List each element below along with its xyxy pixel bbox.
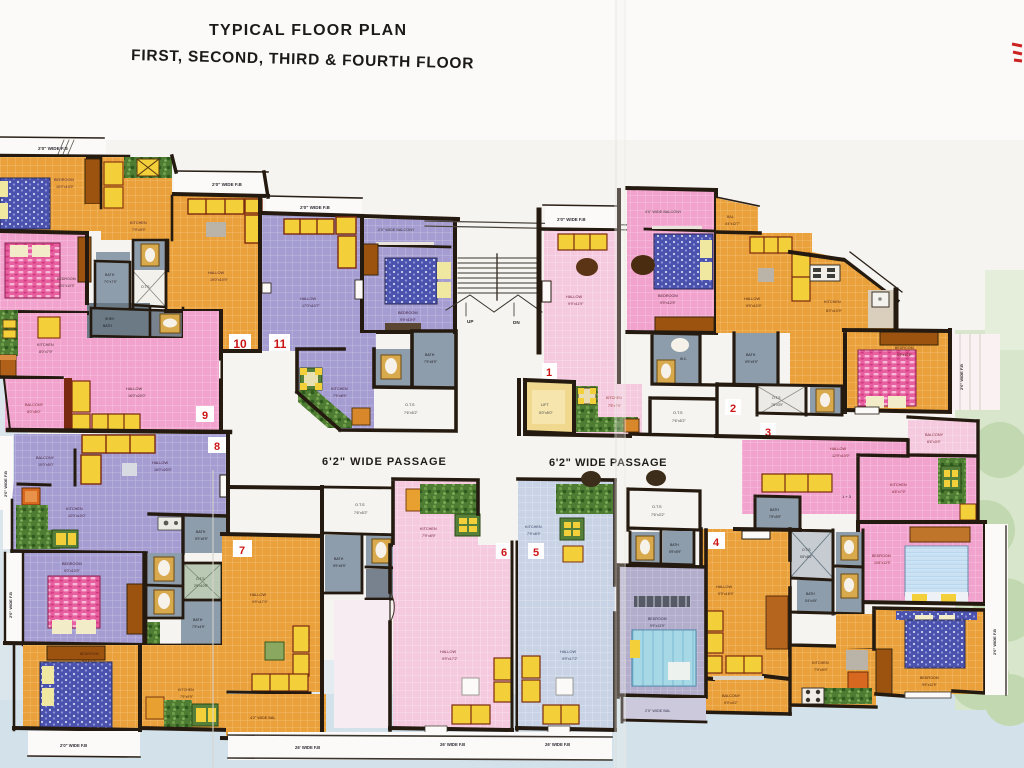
svg-text:KITCHEN: KITCHEN (812, 661, 829, 665)
svg-text:9'0"x10'9": 9'0"x10'9" (64, 569, 80, 573)
svg-text:19'0"x10'9": 19'0"x10'9" (210, 278, 228, 282)
svg-text:26' WIDE F.B: 26' WIDE F.B (295, 745, 320, 750)
svg-text:KITCHEN: KITCHEN (130, 221, 147, 225)
svg-text:5'9"x5'9": 5'9"x5'9" (195, 537, 209, 541)
svg-text:10'0"x5'0": 10'0"x5'0" (38, 463, 54, 467)
svg-text:1: 1 (546, 367, 552, 379)
svg-text:BEDROOM: BEDROOM (895, 346, 914, 350)
svg-text:BATH: BATH (746, 353, 756, 357)
svg-text:HALLOW: HALLOW (126, 387, 142, 391)
svg-text:2'0" WIDE F.B: 2'0" WIDE F.B (557, 217, 586, 222)
svg-text:16'0"x20'0": 16'0"x20'0" (128, 394, 146, 398)
svg-text:2'0" WIDE F.B: 2'0" WIDE F.B (300, 205, 330, 210)
svg-text:HALLOW: HALLOW (250, 593, 266, 597)
svg-text:9: 9 (202, 410, 208, 422)
svg-text:O.T.S: O.T.S (355, 503, 365, 507)
svg-text:KITCHEN: KITCHEN (890, 483, 907, 487)
svg-text:O.T.S: O.T.S (405, 403, 415, 407)
svg-text:2'0" WIDE F.B: 2'0" WIDE F.B (3, 471, 8, 497)
svg-text:12'0"x10'0": 12'0"x10'0" (68, 514, 86, 518)
svg-text:7'9"x5'9": 7'9"x5'9" (424, 360, 438, 364)
svg-text:4: 4 (713, 537, 720, 549)
svg-text:7'9"x8'9": 7'9"x8'9" (333, 394, 347, 398)
svg-text:BATH: BATH (770, 508, 779, 512)
svg-text:2'0" WIDE F.B: 2'0" WIDE F.B (60, 743, 87, 748)
svg-text:2'0" WIDE F.B: 2'0" WIDE F.B (959, 364, 964, 390)
svg-text:5: 5 (533, 547, 539, 559)
svg-text:8'0"x7'9": 8'0"x7'9" (39, 350, 53, 354)
svg-text:17'0"x10'7": 17'0"x10'7" (302, 304, 320, 308)
svg-text:9'9"x4'2": 9'9"x4'2" (724, 701, 738, 705)
svg-text:BEDROOM: BEDROOM (54, 178, 74, 182)
svg-text:BAL.: BAL. (727, 215, 735, 219)
svg-text:BATH: BATH (193, 618, 203, 622)
svg-text:7'0"x7'9": 7'0"x7'9" (104, 280, 118, 284)
svg-text:7'9"x8'9": 7'9"x8'9" (527, 532, 541, 536)
svg-text:W.C.: W.C. (680, 357, 687, 361)
svg-text:O.T.S: O.T.S (652, 505, 662, 509)
svg-text:UP: UP (467, 319, 473, 324)
svg-text:HALLOW: HALLOW (560, 650, 576, 654)
svg-text:5'9"x5'9": 5'9"x5'9" (333, 564, 347, 568)
svg-text:7'9"x9'9": 7'9"x9'9" (180, 695, 194, 699)
svg-text:8'0"x10'9": 8'0"x10'9" (826, 309, 842, 313)
svg-text:2'0" WIDE F.B: 2'0" WIDE F.B (38, 146, 68, 151)
svg-text:BEDROOM: BEDROOM (398, 311, 418, 315)
svg-text:O.T.S: O.T.S (673, 411, 683, 415)
svg-text:KITCHEN: KITCHEN (824, 300, 841, 304)
svg-text:6'6"x3'9": 6'6"x3'9" (927, 440, 941, 444)
svg-text:8: 8 (214, 441, 220, 453)
svg-text:2'0" WIDE F.B: 2'0" WIDE F.B (992, 629, 997, 655)
svg-text:7'9"x8'9": 7'9"x8'9" (422, 534, 436, 538)
svg-text:7'9"x4'9": 7'9"x4'9" (192, 625, 206, 629)
svg-text:BALCONY: BALCONY (25, 403, 44, 407)
svg-text:10: 10 (233, 337, 247, 351)
svg-text:4'2" WIDE BAL: 4'2" WIDE BAL (250, 716, 276, 720)
svg-text:10'6"x12'9": 10'6"x12'9" (874, 561, 892, 565)
svg-text:5'9"x5'9": 5'9"x5'9" (669, 550, 681, 554)
svg-text:TYPICAL FLOOR PLAN: TYPICAL FLOOR PLAN (209, 22, 407, 39)
svg-text:BALCONY: BALCONY (925, 433, 944, 437)
svg-text:O.T.S: O.T.S (141, 285, 150, 289)
svg-text:7'6"x3'2": 7'6"x3'2" (651, 513, 665, 517)
svg-text:HALLOW: HALLOW (716, 585, 732, 589)
svg-text:12'9"x10'9": 12'9"x10'9" (832, 454, 850, 458)
svg-text:BATH: BATH (196, 530, 206, 534)
svg-text:1 + 3: 1 + 3 (842, 494, 852, 499)
svg-text:26' WIDE F.B: 26' WIDE F.B (545, 742, 570, 747)
svg-text:9'9"x12'9": 9'9"x12'9" (922, 683, 938, 687)
svg-text:4'4"x12'7": 4'4"x12'7" (725, 222, 741, 226)
svg-text:BEDROOM: BEDROOM (80, 652, 99, 656)
svg-text:7'9"x9'9": 7'9"x9'9" (132, 228, 146, 232)
svg-text:10'0"x10'9": 10'0"x10'9" (56, 185, 74, 189)
svg-text:9'9"x10'9": 9'9"x10'9" (746, 304, 762, 308)
svg-text:2'0" WIDE F.B: 2'0" WIDE F.B (212, 182, 242, 187)
svg-text:7'6"x5'2": 7'6"x5'2" (672, 419, 686, 423)
svg-text:2'0" WIDE F.B: 2'0" WIDE F.B (8, 592, 13, 618)
svg-text:KITCHEN: KITCHEN (420, 527, 437, 531)
svg-text:6'2" WIDE PASSAGE: 6'2" WIDE PASSAGE (549, 457, 667, 469)
svg-text:BEDROOM: BEDROOM (658, 294, 678, 298)
svg-text:KITCHEN: KITCHEN (178, 688, 194, 692)
svg-text:5'4"x4'9": 5'4"x4'9" (805, 599, 817, 603)
svg-text:HALLOW: HALLOW (440, 650, 456, 654)
svg-text:9'9"x10'9": 9'9"x10'9" (400, 318, 416, 322)
svg-text:7'6"x5'2": 7'6"x5'2" (404, 411, 418, 415)
svg-text:BATH: BATH (103, 324, 112, 328)
svg-text:2: 2 (730, 403, 736, 415)
svg-text:HALLOW: HALLOW (744, 297, 760, 301)
svg-text:7: 7 (239, 545, 245, 557)
svg-text:4'0" WIDE BALCONY: 4'0" WIDE BALCONY (645, 210, 682, 214)
svg-text:HALLOW: HALLOW (152, 461, 168, 465)
svg-text:5'9"x5'9": 5'9"x5'9" (745, 360, 759, 364)
svg-text:BATH: BATH (105, 273, 115, 277)
svg-text:6: 6 (501, 547, 507, 559)
svg-text:7'9"x9'9": 7'9"x9'9" (814, 668, 828, 672)
svg-text:11: 11 (274, 337, 287, 351)
svg-text:LIFT: LIFT (541, 403, 549, 407)
svg-text:9'9"x11'9": 9'9"x11'9" (568, 302, 584, 306)
svg-text:O.T.S: O.T.S (772, 396, 781, 400)
svg-text:BATH: BATH (670, 543, 679, 547)
svg-text:BATH: BATH (425, 353, 435, 357)
svg-text:5'0"x5'0": 5'0"x5'0" (539, 411, 553, 415)
svg-text:9'9"x17'2": 9'9"x17'2" (442, 657, 458, 661)
svg-text:2'0" WIDE BAL: 2'0" WIDE BAL (645, 709, 671, 713)
svg-text:5'6"x5'4": 5'6"x5'4" (800, 555, 812, 559)
svg-text:BEDROOM: BEDROOM (57, 277, 76, 281)
svg-text:O.T.S: O.T.S (802, 548, 811, 552)
svg-text:KITCHEN: KITCHEN (525, 525, 542, 529)
svg-text:10'0"x10'9": 10'0"x10'9" (58, 284, 76, 288)
svg-text:O.T.S: O.T.S (196, 577, 205, 581)
svg-text:9'9"x17'9": 9'9"x17'9" (252, 600, 268, 604)
svg-text:9'9"x12'9": 9'9"x12'9" (660, 301, 676, 305)
svg-text:BALCONY: BALCONY (36, 456, 55, 460)
svg-text:7'9"x5'9": 7'9"x5'9" (769, 515, 781, 519)
svg-text:SHEV: SHEV (105, 317, 115, 321)
svg-text:HALLOW: HALLOW (566, 295, 582, 299)
svg-text:BEDROOM: BEDROOM (920, 676, 939, 680)
svg-text:HALLOW: HALLOW (300, 297, 316, 301)
svg-text:7'6"x5'2": 7'6"x5'2" (354, 511, 368, 515)
svg-text:BEDROOM: BEDROOM (872, 554, 891, 558)
svg-text:9'9"x10'9": 9'9"x10'9" (897, 353, 913, 357)
svg-text:8'0"x5'0": 8'0"x5'0" (27, 410, 41, 414)
svg-text:BALCONY: BALCONY (722, 694, 741, 698)
svg-text:26' WIDE F.B: 26' WIDE F.B (440, 742, 465, 747)
svg-text:KITCHEN: KITCHEN (66, 507, 83, 511)
svg-text:9'9"x17'2": 9'9"x17'2" (562, 657, 578, 661)
svg-text:9'9"x16'9": 9'9"x16'9" (718, 592, 734, 596)
svg-text:HALLOW: HALLOW (830, 447, 846, 451)
svg-text:2'0" WIDE BALCONY: 2'0" WIDE BALCONY (378, 228, 415, 232)
svg-text:BATH: BATH (806, 592, 815, 596)
svg-text:9'9"x13'9": 9'9"x13'9" (650, 624, 666, 628)
svg-text:DN: DN (513, 320, 520, 325)
svg-text:2'9"x10'9": 2'9"x10'9" (194, 584, 208, 588)
svg-text:BEDROOM: BEDROOM (648, 617, 667, 621)
svg-text:6'2" WIDE PASSAGE: 6'2" WIDE PASSAGE (322, 456, 447, 468)
svg-text:16'0"x20'0": 16'0"x20'0" (154, 468, 172, 472)
svg-text:KITCHEN: KITCHEN (331, 387, 348, 391)
svg-text:BATH: BATH (334, 557, 344, 561)
svg-text:KITCHEN: KITCHEN (37, 343, 54, 347)
svg-text:HALLOW: HALLOW (208, 271, 224, 275)
svg-text:6'6"x7'9": 6'6"x7'9" (892, 490, 906, 494)
svg-text:7'6"x3'9": 7'6"x3'9" (771, 403, 783, 407)
svg-text:BEDROOM: BEDROOM (62, 562, 82, 566)
